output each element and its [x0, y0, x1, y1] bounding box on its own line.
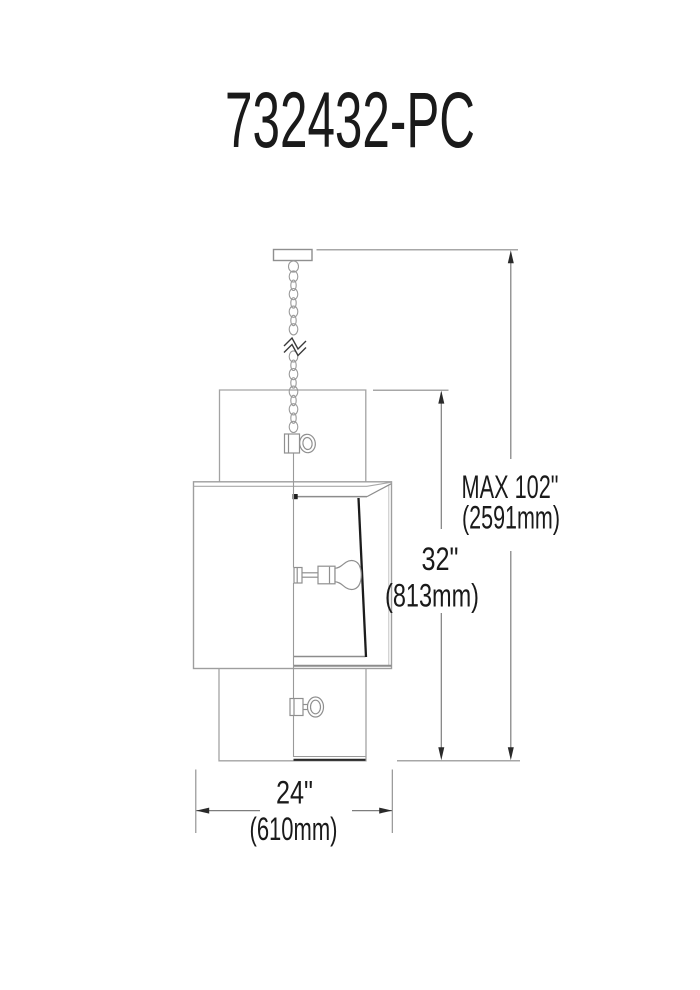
- upper-loop-fitting: [285, 433, 317, 453]
- shade-height-metric-label: (813mm): [385, 578, 479, 614]
- width-imperial-label: 24": [276, 775, 313, 811]
- arrow-up-icon: [438, 391, 444, 404]
- arrow-up-icon: [508, 250, 514, 263]
- bottom-loop-fitting: [290, 697, 324, 717]
- chain-break-symbol: [284, 338, 306, 356]
- spec-sheet-page: 732432-PC: [0, 0, 700, 990]
- width-metric-label: (610mm): [250, 811, 338, 847]
- light-bulb: [335, 561, 361, 590]
- arrow-down-icon: [438, 747, 444, 760]
- technical-drawing: 732432-PC: [0, 0, 700, 990]
- shade-height-imperial-label: 32": [422, 541, 459, 577]
- overall-height-metric-label: (2591mm): [462, 500, 560, 536]
- arrow-down-icon: [508, 747, 514, 760]
- page-title: 732432-PC: [225, 75, 475, 164]
- bulb-socket-assembly: [294, 561, 361, 590]
- ceiling-canopy: [274, 250, 313, 261]
- arrow-right-icon: [379, 808, 392, 814]
- extension-lines: [196, 250, 520, 833]
- arrow-left-icon: [196, 808, 209, 814]
